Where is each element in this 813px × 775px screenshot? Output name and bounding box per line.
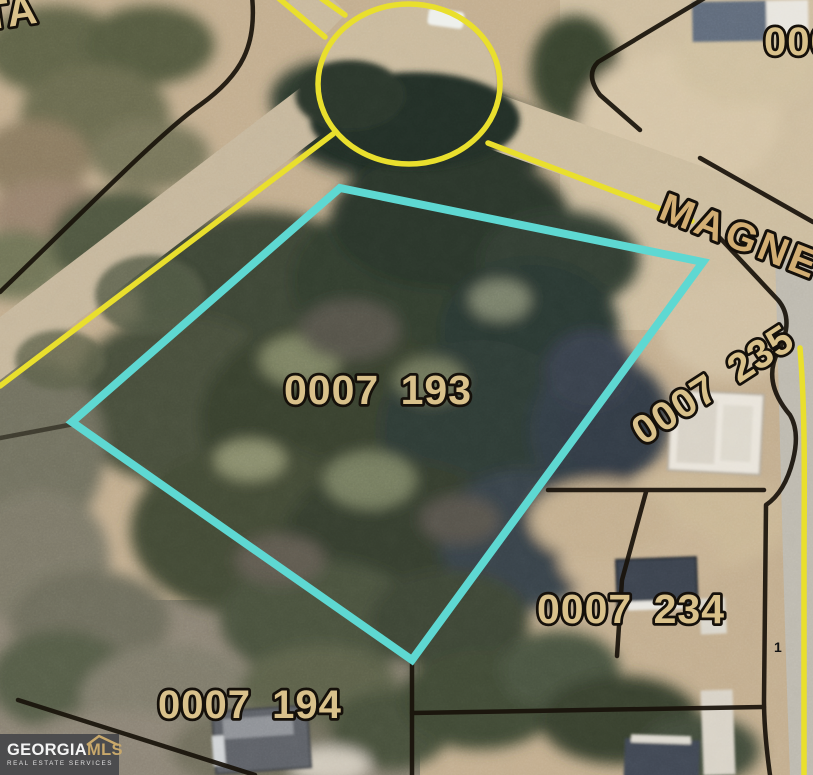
aerial-map-canvas[interactable]: TA 0007 MAGNE 0007 193 0007 235 0007 234… [0,0,813,775]
georgiamls-watermark: GEORGIAMLS REAL ESTATE SERVICES [0,734,119,775]
parcel-label-bottom-right: 0007 234 [537,586,725,632]
brand-primary-label: GEORGIA [7,742,87,759]
brand-row: GEORGIAMLS [7,742,115,759]
parcel-label-top-right-partial: 0007 [764,20,813,64]
brand-tagline: REAL ESTATE SERVICES [7,760,115,767]
brand-secondary-wrap: MLS [87,742,123,759]
parcel-label-bottom-left: 0007 194 [158,683,342,727]
aerial-map[interactable]: TA 0007 MAGNE 0007 193 0007 235 0007 234… [0,0,813,775]
parcel-label-subject: 0007 193 [284,367,472,413]
lot-number-marker: 1 [774,639,782,655]
brand-roof-icon [85,734,121,746]
